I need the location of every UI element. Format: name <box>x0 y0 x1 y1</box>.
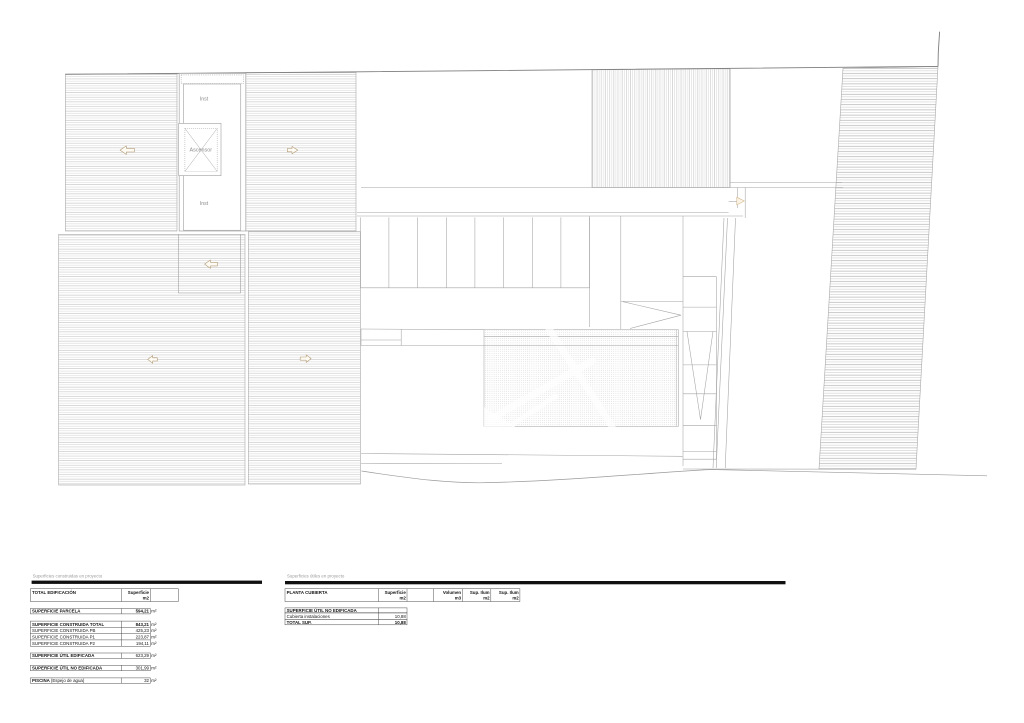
svg-text:m²: m² <box>151 653 157 658</box>
svg-text:PISCINA (Espejo de agua): PISCINA (Espejo de agua) <box>32 678 85 683</box>
svg-text:SUPERFICIE CONSTRUIDA PB: SUPERFICIE CONSTRUIDA PB <box>32 628 96 633</box>
svg-text:m²: m² <box>151 628 157 633</box>
svg-text:SUPERFICIE ÚTIL NO EDIFICADA: SUPERFICIE ÚTIL NO EDIFICADA <box>32 665 103 670</box>
svg-text:10,88: 10,88 <box>395 620 407 625</box>
svg-text:m2: m2 <box>143 596 150 601</box>
svg-text:SUPERFICIE CONSTRUIDA P2: SUPERFICIE CONSTRUIDA P2 <box>32 641 96 646</box>
svg-text:Inst: Inst <box>200 201 209 207</box>
svg-text:301,99: 301,99 <box>136 665 150 670</box>
svg-text:m²: m² <box>151 665 157 670</box>
svg-text:SUPERFICIE CONSTRUIDA P1: SUPERFICIE CONSTRUIDA P1 <box>32 634 96 639</box>
svg-text:m3: m3 <box>455 596 462 601</box>
svg-text:223,87: 223,87 <box>136 634 150 639</box>
svg-text:m2: m2 <box>512 596 519 601</box>
svg-text:194,11: 194,11 <box>136 641 150 646</box>
svg-text:m²: m² <box>151 678 157 683</box>
svg-text:TOTAL SUP.: TOTAL SUP. <box>287 620 312 625</box>
svg-text:PLANTA CUBIERTA: PLANTA CUBIERTA <box>287 590 329 595</box>
svg-text:Superficies útiles en proyecto: Superficies útiles en proyecto <box>287 574 345 579</box>
svg-text:425,23: 425,23 <box>136 628 150 633</box>
svg-text:m2: m2 <box>483 596 490 601</box>
svg-text:m²: m² <box>151 641 157 646</box>
svg-text:SUPERFICIE ÚTIL EDIFICADA: SUPERFICIE ÚTIL EDIFICADA <box>32 653 95 658</box>
svg-text:SUPERFICIE ÚTIL NO EDIFICADA: SUPERFICIE ÚTIL NO EDIFICADA <box>287 608 358 613</box>
svg-text:SUPERFICIE CONSTRUIDA TOTAL: SUPERFICIE CONSTRUIDA TOTAL <box>32 622 104 627</box>
svg-text:843,21: 843,21 <box>136 622 150 627</box>
svg-text:Sup. Ilum: Sup. Ilum <box>470 590 490 595</box>
svg-text:SUPERFICIE PARCELA: SUPERFICIE PARCELA <box>32 609 81 614</box>
svg-text:Inst: Inst <box>200 96 209 102</box>
svg-text:Superficie: Superficie <box>385 590 407 595</box>
svg-text:Sup. Ilum: Sup. Ilum <box>499 590 519 595</box>
svg-text:32: 32 <box>144 678 149 683</box>
svg-text:594,21: 594,21 <box>136 609 150 614</box>
svg-text:623,29: 623,29 <box>136 653 150 658</box>
svg-text:Superficie: Superficie <box>128 590 150 595</box>
svg-text:m²: m² <box>151 634 157 639</box>
svg-text:Cubierta instalaciones: Cubierta instalaciones <box>287 614 331 619</box>
svg-text:m²: m² <box>151 609 157 614</box>
svg-text:Superficies construidas en pro: Superficies construidas en proyecto <box>33 574 103 579</box>
svg-text:m2: m2 <box>399 596 406 601</box>
svg-text:TOTAL EDIFICACIÓN: TOTAL EDIFICACIÓN <box>32 590 76 595</box>
svg-text:Ascensor: Ascensor <box>190 148 213 154</box>
svg-text:10,88: 10,88 <box>395 614 407 619</box>
svg-text:Volumen: Volumen <box>443 590 462 595</box>
svg-text:m²: m² <box>151 622 157 627</box>
